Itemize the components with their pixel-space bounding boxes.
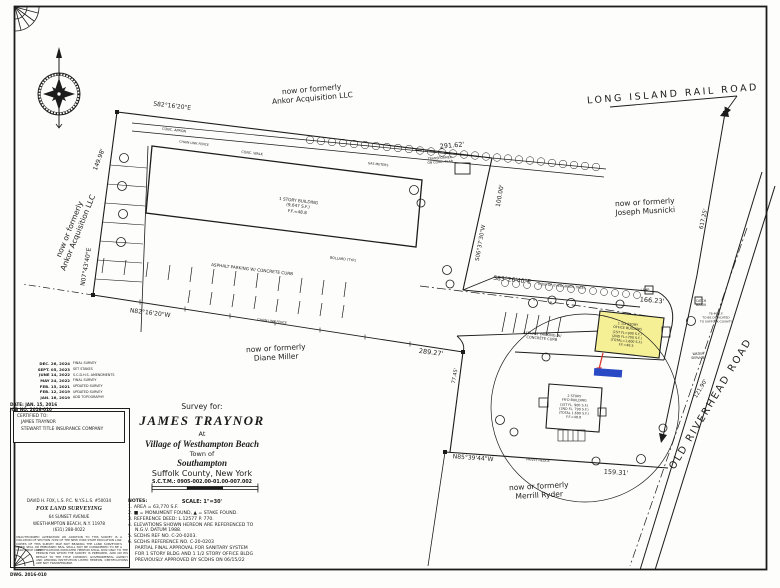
adjoiner-ryder: now or formerly Merrill Ryder [509,480,570,502]
surveyor-firm: FOX LAND SURVEYING [10,505,128,515]
surveyor-identity: DAVID H. FOX, L.S. P.C. N.Y.S.L.S. #5003… [10,498,128,534]
town-of-label: Town of [127,450,277,458]
corner-fan-icon [15,7,39,31]
disclaimer-paragraph: CERTIFICATIONS INDICATED HEREON SHALL RU… [16,549,128,565]
road-lines [630,172,775,570]
note-line: PREVIOUSLY APPROVED BY SCDHS ON 06/15/22 [128,558,333,564]
revision-block: DEC. 26, 2024 FINAL SURVEY SEPT. 05, 202… [10,361,130,412]
revision-row: JAN. 16, 2019 ADD TOPOGRAPHY [10,395,130,401]
dwg-number: DWG. 2016-010 [10,573,47,578]
water-service-label: WATER SERVICE [691,352,704,360]
dedication-label: 78.46 S.F. TO BE DEDICATED TO SUFFOLK CO… [700,312,732,323]
title-block: Survey for: JAMES TRAYNOR At Village of … [127,402,277,505]
steps-hatch [558,430,585,441]
town-name: Southampton [127,458,277,468]
office-building-label: 1 1/2 STORY OFFICE BUILDING (1ST FL=900 … [610,321,644,349]
survey-for-label: Survey for: [127,402,277,411]
client-name: JAMES TRAYNOR [127,413,277,429]
revision-note: ADD TOPOGRAPHY [73,395,104,401]
house-label: 2 STORY FR'D BUILDING (1ST FL. 900 S.F.)… [558,394,589,421]
highlight-blue-marker [594,368,622,377]
sctm-label: S.C.T.M.: 0905-002.00-01.00-007.002 [127,480,277,485]
survey-sheet: LONG ISLAND RAIL ROAD OLD RIVERHEAD ROAD… [0,0,780,588]
transformer-pad [455,163,470,174]
surveyor-principal: DAVID H. FOX, L.S. P.C. N.Y.S.L.S. #5003… [10,498,128,505]
catch-basin-label: CATCH BASIN [696,299,707,307]
village-name: Village of Westhampton Beach [127,439,277,449]
certified-to-box: CERTIFIED TO: JAMES TRAYNOR STEWART TITL… [13,411,125,443]
dedication-line: TO SUFFOLK COUNTY [700,320,732,324]
compass-rose-icon [38,47,80,128]
notes-block: NOTES: 1. AREA = 63,770 S.F. 2. ■ = MONU… [128,499,333,564]
adjoiner-musnicki: now or formerly Joseph Musnicki [615,196,676,218]
certified-name: STEWART TITLE INSURANCE COMPANY [17,427,121,433]
at-label: At [127,430,277,438]
north-strip [132,123,606,177]
revision-date: JAN. 16, 2019 [10,395,73,401]
adjoiner-miller: now or formerly Diane Miller [246,342,307,364]
catch-basin-line: BASIN [696,303,707,307]
surveyor-phone: (631) 288-0022 [10,527,128,534]
lamp-label: LAMP [641,289,650,293]
county-label: Suffolk County, New York [127,469,277,478]
water-service-line: SERVICE [691,356,704,360]
main-building-outline [146,146,470,247]
